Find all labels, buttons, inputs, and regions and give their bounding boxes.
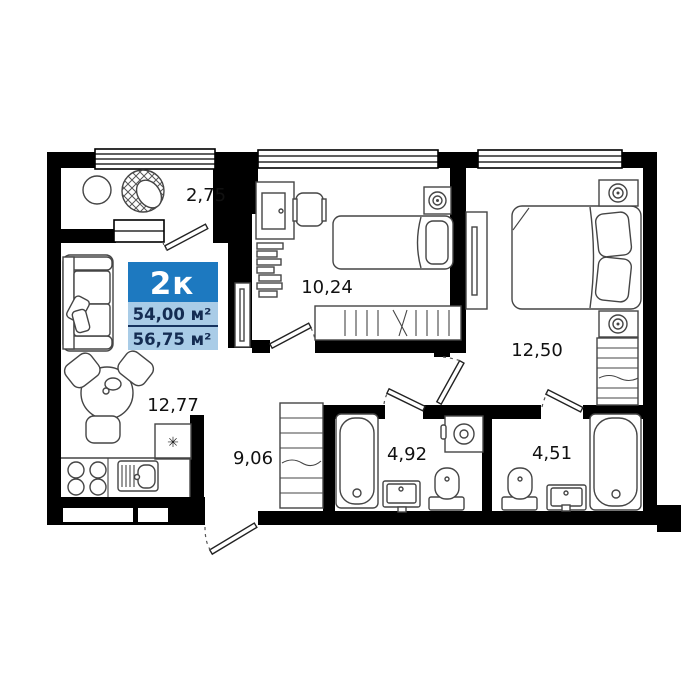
apartment-badge: 2к 54,00 м² 56,75 м² <box>128 262 218 350</box>
room-bathroom-2: 4,51 <box>502 414 641 511</box>
badge-divider <box>128 325 218 327</box>
wall-segment <box>643 152 657 525</box>
balcony-glazing-icon <box>95 149 215 169</box>
bathtub-icon <box>590 414 641 510</box>
room-bedroom-master: 12,50 <box>466 180 641 405</box>
door-swing-arc <box>443 357 461 361</box>
round-table-icon <box>83 176 111 204</box>
nightstand-lamp-icon <box>599 180 638 206</box>
room-area-label: 12,50 <box>511 340 563 361</box>
room-balcony: 2,75 <box>83 170 226 213</box>
badge-rooms-label: 2к <box>150 266 195 302</box>
chair-icon <box>86 416 120 443</box>
shelving-wardrobe-icon <box>597 338 638 405</box>
floor-plan-page: 2,75 ✳ <box>0 0 700 700</box>
badge-area-total: 54,00 м² <box>133 305 212 324</box>
door-icon <box>546 390 583 412</box>
wall-segment <box>323 405 335 511</box>
snowflake-icon: ✳ <box>167 435 179 451</box>
wall-niche <box>63 508 133 522</box>
door-icon <box>437 361 464 405</box>
wall-segment <box>47 152 61 525</box>
nightstand-lamp-icon <box>599 311 638 337</box>
wardrobe-icon <box>315 306 461 340</box>
toilet-icon <box>502 468 537 510</box>
window-icon <box>114 220 164 242</box>
room-hallway: 9,06 <box>233 403 323 508</box>
single-bed-icon <box>333 216 453 269</box>
door-icon <box>165 224 208 250</box>
wall-segment <box>657 505 681 532</box>
bookshelf-icon <box>257 243 283 297</box>
bathtub-icon <box>336 414 378 508</box>
wall-niche <box>138 508 168 522</box>
room-area-label: 2,75 <box>186 185 226 206</box>
room-bedroom-small: 10,24 <box>256 182 461 340</box>
wicker-chair-icon <box>122 170 167 213</box>
room-area-label: 12,77 <box>147 395 199 416</box>
room-area-label: 4,51 <box>532 443 572 464</box>
wall-segment <box>434 345 450 357</box>
tv-stand-icon <box>466 212 487 309</box>
room-bathroom-1: 4,92 <box>336 414 483 512</box>
desk-icon <box>256 182 294 239</box>
office-chair-icon <box>293 193 326 226</box>
sofa-icon <box>63 255 113 351</box>
door-swing-arc <box>205 527 211 551</box>
wall-segment <box>252 340 270 353</box>
fridge-icon: ✳ <box>155 424 191 459</box>
wall-segment <box>190 415 204 497</box>
tv-icon <box>235 283 250 347</box>
room-area-label: 9,06 <box>233 448 273 469</box>
toilet-icon <box>429 468 464 510</box>
washing-machine-icon <box>441 416 483 452</box>
floor-plan-canvas: 2,75 ✳ <box>0 0 700 700</box>
sink-icon <box>547 485 586 511</box>
nightstand-lamp-icon <box>424 187 451 214</box>
window-icon <box>478 150 622 168</box>
stove-icon <box>68 462 106 495</box>
room-area-label: 4,92 <box>387 444 427 465</box>
kitchen-sink-icon <box>118 461 158 491</box>
sink-icon <box>383 481 420 512</box>
room-area-label: 10,24 <box>301 277 353 298</box>
wall-segment <box>61 229 116 243</box>
closet-icon <box>280 403 323 508</box>
double-bed-icon <box>512 206 641 309</box>
door-icon <box>210 523 257 554</box>
wall-segment <box>258 511 643 525</box>
wall-segment <box>438 152 478 168</box>
window-icon <box>258 150 438 168</box>
door-icon <box>270 323 311 348</box>
door-icon <box>387 389 425 411</box>
badge-area-full: 56,75 м² <box>133 330 212 349</box>
